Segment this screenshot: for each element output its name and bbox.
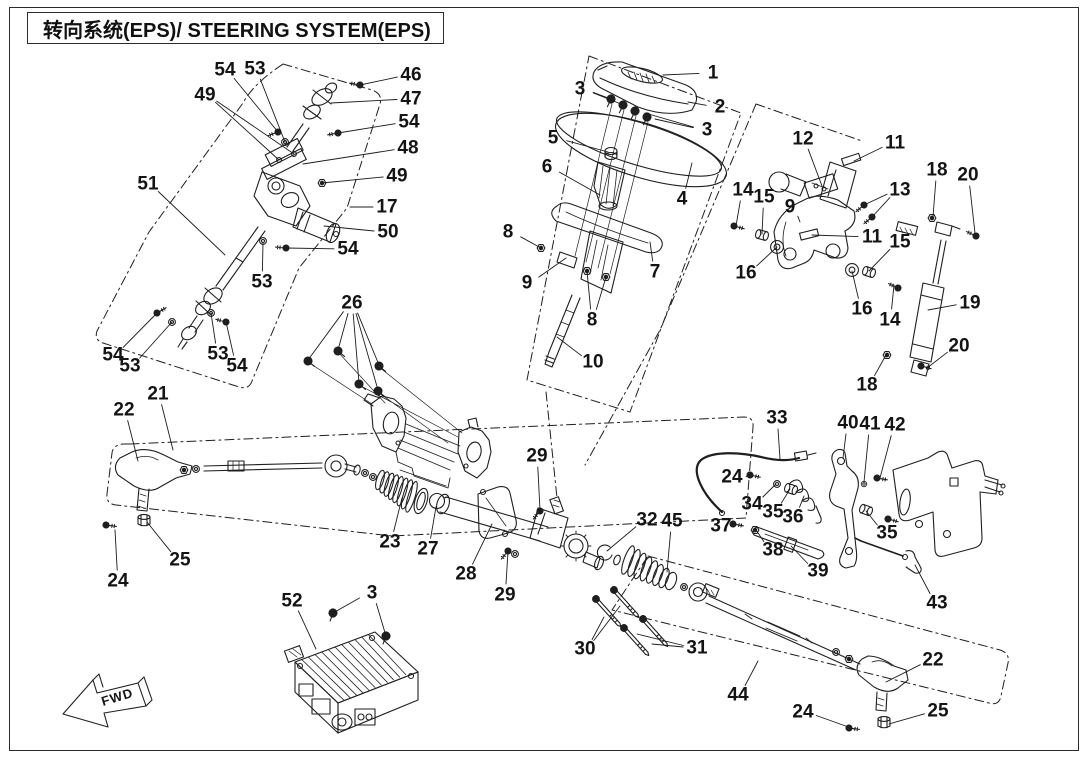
leader-line bbox=[338, 124, 395, 133]
leader-line bbox=[234, 78, 278, 132]
leader-line bbox=[880, 436, 891, 478]
leader-line bbox=[324, 226, 374, 231]
leader-line bbox=[322, 177, 383, 183]
catalog-page: FWD 转向系统(EPS)/ STEERING SYSTEM(EPS) 5453… bbox=[0, 0, 1090, 760]
damper-group bbox=[883, 215, 980, 376]
leader-line bbox=[338, 314, 348, 351]
leader-line bbox=[757, 247, 777, 266]
leader-line bbox=[869, 250, 890, 272]
page-title: 转向系统(EPS)/ STEERING SYSTEM(EPS) bbox=[43, 14, 431, 43]
leader-line bbox=[298, 611, 316, 649]
leader-line bbox=[886, 665, 920, 682]
exploded-diagram: FWD bbox=[0, 0, 1090, 760]
leader-line bbox=[650, 242, 653, 261]
leader-line bbox=[473, 524, 493, 564]
leader-line bbox=[226, 322, 234, 355]
leader-line bbox=[928, 305, 956, 310]
leader-line bbox=[353, 314, 359, 383]
leader-line bbox=[875, 355, 887, 376]
fwd-arrow: FWD bbox=[63, 674, 152, 727]
leader-line bbox=[260, 79, 285, 142]
leader-line bbox=[798, 216, 800, 222]
leader-line bbox=[808, 149, 822, 186]
ecu-group bbox=[284, 608, 418, 733]
leader-line bbox=[854, 147, 882, 161]
leader-line bbox=[506, 551, 508, 584]
leader-line bbox=[889, 714, 925, 724]
leader-line bbox=[762, 208, 763, 234]
leader-line bbox=[128, 421, 138, 461]
leader-line bbox=[778, 429, 780, 459]
rack-group bbox=[302, 345, 719, 657]
leader-line bbox=[763, 485, 775, 497]
leader-line bbox=[115, 530, 117, 570]
leader-line bbox=[745, 661, 758, 686]
leader-line bbox=[816, 716, 854, 730]
leader-line bbox=[667, 532, 671, 572]
leader-line bbox=[927, 352, 948, 368]
leader-line bbox=[217, 101, 294, 154]
callout-leader-lines bbox=[115, 73, 975, 729]
left-tie-rod-group bbox=[103, 450, 377, 530]
leader-line bbox=[688, 102, 706, 105]
leader-line bbox=[162, 405, 173, 450]
leader-line bbox=[521, 237, 541, 248]
assembly-boundaries bbox=[96, 56, 1008, 704]
leader-line bbox=[864, 194, 887, 205]
leader-line bbox=[538, 467, 540, 510]
leader-line bbox=[663, 73, 699, 75]
linkage-group bbox=[697, 449, 1005, 573]
fwd-label: FWD bbox=[99, 685, 135, 709]
steering-column-group bbox=[153, 80, 364, 349]
leader-line bbox=[892, 285, 894, 309]
leader-line bbox=[593, 93, 621, 104]
leader-line bbox=[864, 435, 869, 482]
leader-line bbox=[607, 527, 636, 551]
leader-line bbox=[216, 102, 280, 160]
leader-line bbox=[915, 565, 930, 594]
leader-line bbox=[655, 119, 693, 128]
steering-wheel-group bbox=[537, 62, 734, 367]
leader-line bbox=[872, 198, 890, 217]
leader-line bbox=[123, 313, 157, 347]
leader-line bbox=[331, 100, 397, 104]
leader-line bbox=[970, 186, 975, 233]
leader-line bbox=[303, 150, 394, 164]
title-block: 转向系统(EPS)/ STEERING SYSTEM(EPS) bbox=[27, 12, 444, 44]
leader-line bbox=[736, 201, 740, 226]
right-tie-rod-group bbox=[706, 596, 908, 732]
leader-line bbox=[147, 522, 171, 552]
leader-line bbox=[360, 77, 397, 85]
steering-bracket-group bbox=[730, 153, 902, 292]
leader-line bbox=[539, 258, 566, 277]
leader-line bbox=[592, 617, 604, 640]
leader-line bbox=[211, 313, 216, 343]
leader-line bbox=[376, 604, 386, 637]
leader-line bbox=[158, 192, 225, 256]
leader-line bbox=[262, 243, 263, 271]
leader-line bbox=[333, 598, 360, 613]
leader-line bbox=[286, 248, 334, 249]
leader-line bbox=[356, 314, 378, 391]
leader-line bbox=[781, 489, 790, 503]
leader-line bbox=[140, 322, 172, 358]
leader-line bbox=[596, 277, 606, 310]
leader-line bbox=[933, 181, 936, 217]
leader-line bbox=[587, 271, 591, 309]
